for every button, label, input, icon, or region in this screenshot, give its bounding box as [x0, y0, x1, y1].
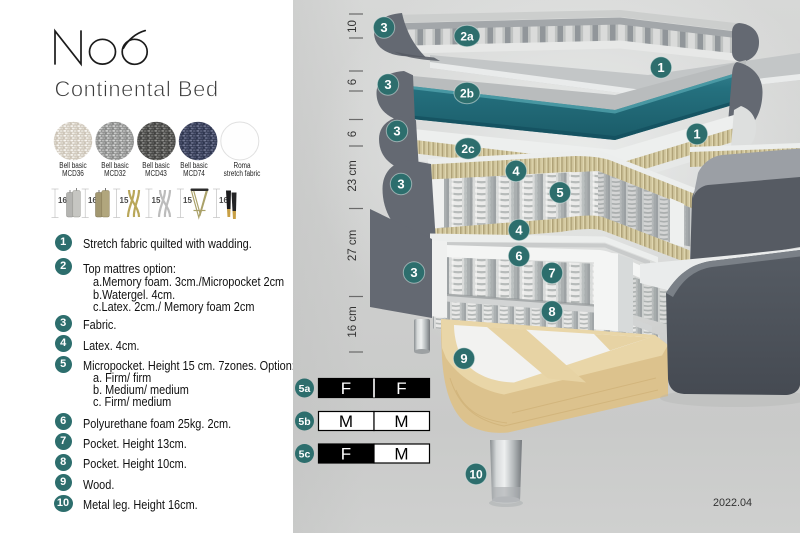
svg-text:M: M [394, 445, 408, 464]
svg-text:M: M [394, 412, 408, 431]
svg-text:2a: 2a [460, 30, 474, 44]
svg-text:15: 15 [120, 196, 129, 205]
svg-text:4: 4 [512, 164, 520, 179]
svg-text:27 cm: 27 cm [347, 230, 359, 261]
svg-text:6: 6 [515, 249, 522, 264]
svg-text:10: 10 [347, 20, 359, 33]
svg-text:9: 9 [460, 351, 467, 366]
svg-text:6: 6 [347, 131, 359, 137]
svg-text:1: 1 [693, 127, 700, 142]
svg-text:16: 16 [58, 196, 67, 205]
svg-text:16 cm: 16 cm [347, 306, 359, 337]
svg-text:2b: 2b [460, 87, 474, 101]
svg-text:3: 3 [397, 177, 404, 192]
svg-text:2022.04: 2022.04 [713, 497, 752, 509]
svg-text:3: 3 [410, 265, 417, 280]
svg-text:F: F [396, 379, 406, 398]
svg-text:5a: 5a [299, 383, 311, 395]
svg-text:3: 3 [393, 124, 400, 139]
svg-text:M: M [339, 412, 353, 431]
svg-text:15: 15 [183, 196, 192, 205]
svg-text:8: 8 [548, 304, 555, 319]
svg-text:5c: 5c [299, 448, 311, 460]
svg-text:5b: 5b [298, 416, 310, 428]
svg-text:F: F [341, 379, 351, 398]
svg-text:7: 7 [548, 266, 555, 281]
svg-text:6: 6 [347, 79, 359, 85]
svg-text:3: 3 [384, 77, 391, 92]
svg-text:15: 15 [152, 196, 161, 205]
svg-text:F: F [341, 445, 351, 464]
svg-text:2c: 2c [461, 142, 475, 156]
svg-text:10: 10 [469, 468, 483, 482]
svg-text:1: 1 [657, 60, 664, 75]
svg-text:4: 4 [515, 223, 523, 238]
svg-text:Continental Bed: Continental Bed [55, 77, 219, 102]
svg-text:5: 5 [556, 185, 563, 200]
svg-text:3: 3 [380, 20, 387, 35]
svg-text:23 cm: 23 cm [347, 160, 359, 191]
